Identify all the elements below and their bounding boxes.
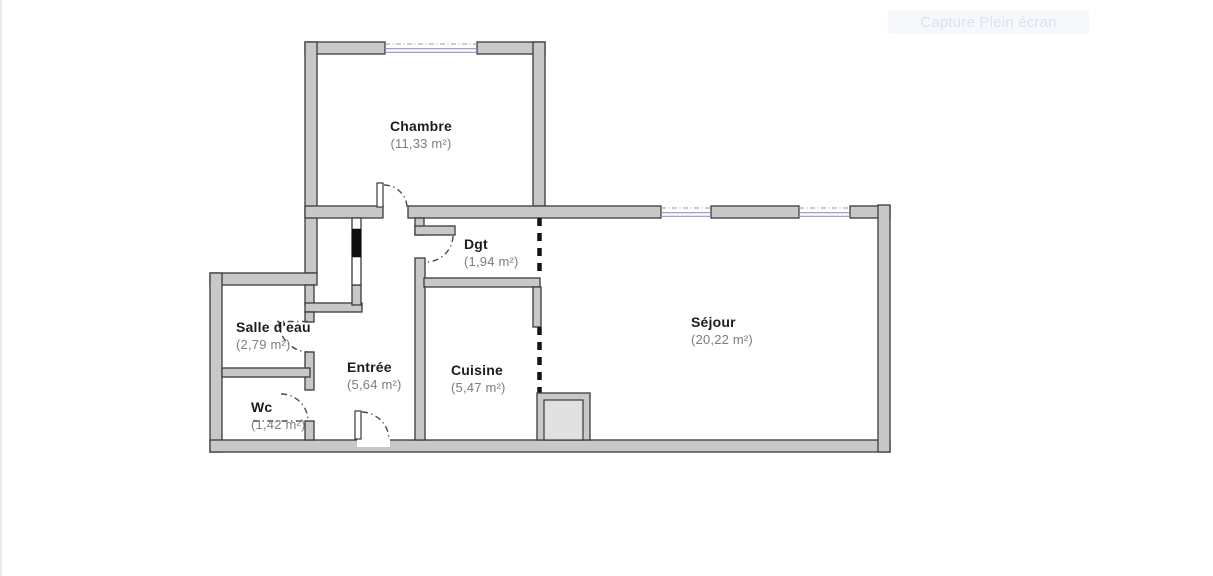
entrance-opening bbox=[357, 439, 390, 447]
dgt-door bbox=[426, 236, 453, 262]
wall bbox=[210, 273, 317, 285]
wall bbox=[210, 440, 890, 452]
wall bbox=[305, 42, 317, 273]
floor-plan-screenshot: Chambre (11,33 m²) Dgt (1,94 m²) Salle d… bbox=[0, 0, 1213, 576]
wall bbox=[305, 206, 383, 218]
windows bbox=[385, 44, 850, 216]
chambre-window bbox=[385, 44, 477, 52]
capture-fullscreen-button[interactable]: Capture Plein écran bbox=[888, 11, 1089, 34]
closet bbox=[352, 218, 361, 285]
wall bbox=[222, 368, 310, 377]
chambre-door bbox=[377, 183, 407, 207]
wall bbox=[878, 205, 890, 452]
wall bbox=[305, 421, 314, 440]
floor-plan-svg bbox=[0, 0, 1213, 576]
sejour-window-1 bbox=[661, 208, 711, 216]
wall bbox=[408, 206, 661, 218]
capture-fullscreen-label: Capture Plein écran bbox=[920, 14, 1056, 31]
closet-door-panel bbox=[352, 229, 361, 257]
duct-box bbox=[537, 393, 590, 440]
wall bbox=[711, 206, 799, 218]
wall bbox=[210, 273, 222, 452]
wall bbox=[533, 42, 545, 206]
wall bbox=[305, 312, 314, 322]
salle-deau-door bbox=[277, 322, 309, 353]
wall bbox=[415, 226, 455, 235]
wc-door bbox=[253, 394, 308, 421]
entrance-door bbox=[355, 411, 389, 439]
wall bbox=[305, 285, 314, 305]
sejour-window-2 bbox=[799, 208, 850, 216]
wall bbox=[424, 278, 540, 287]
walls bbox=[210, 42, 890, 452]
wall bbox=[352, 285, 361, 305]
wall bbox=[533, 287, 541, 327]
